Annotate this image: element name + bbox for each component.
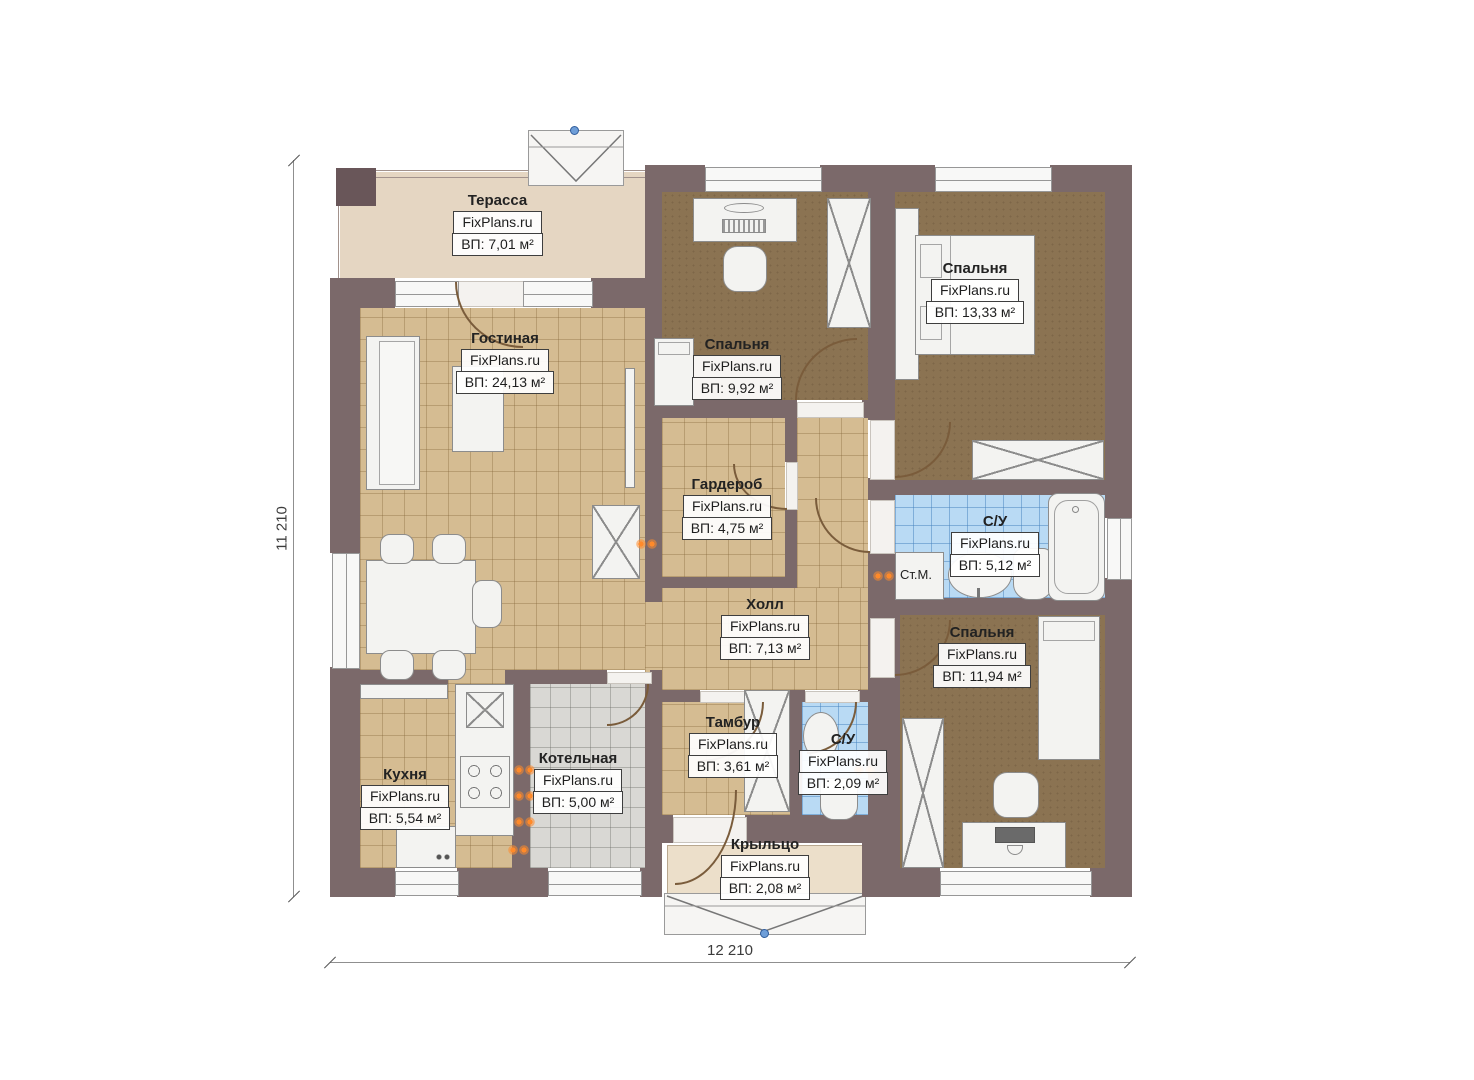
area-box: ВП: 4,75 м² [682, 517, 773, 540]
room-label-bedroom-top: Спальня FixPlans.ru ВП: 9,92 м² [672, 336, 802, 400]
steps-node-dot [760, 929, 769, 938]
area-box: ВП: 13,33 м² [926, 301, 1024, 324]
room-label-terrace: Терасса FixPlans.ru ВП: 7,01 м² [430, 192, 565, 256]
brand-box: FixPlans.ru [689, 733, 777, 756]
window [395, 281, 459, 307]
door-opening [870, 500, 895, 554]
wall-segment [868, 478, 895, 500]
wall-segment [785, 418, 797, 462]
window [705, 167, 822, 192]
brand-box: FixPlans.ru [361, 785, 449, 808]
brand-box: FixPlans.ru [721, 615, 809, 638]
wardrobe-cabinet [972, 440, 1104, 480]
wall-segment [662, 577, 785, 588]
window [1107, 518, 1132, 580]
room-label-bathroom-small: С/У FixPlans.ru ВП: 2,09 м² [778, 731, 908, 795]
door-opening [870, 618, 895, 678]
wall-segment [505, 670, 607, 684]
dimension-line-vertical [293, 160, 294, 897]
sofa [366, 336, 420, 490]
window [523, 281, 593, 307]
room-name: Тамбур [706, 714, 760, 731]
room-label-living: Гостиная FixPlans.ru ВП: 24,13 м² [440, 330, 570, 394]
wall-segment [1050, 165, 1132, 192]
bathtub-inner [1054, 500, 1099, 594]
wall-segment [662, 690, 700, 702]
kitchen-sink [466, 692, 504, 728]
brand-box: FixPlans.ru [693, 355, 781, 378]
kitchen-counter [360, 684, 448, 699]
brand-box: FixPlans.ru [721, 855, 809, 878]
wall-segment [900, 868, 940, 897]
computer-monitor [995, 827, 1035, 843]
room-name: С/У [983, 513, 1007, 530]
keyboard [722, 219, 766, 233]
tv-unit [625, 368, 635, 488]
room-name: Кухня [383, 766, 427, 783]
sofa-seat [379, 341, 415, 485]
room-label-hall: Холл FixPlans.ru ВП: 7,13 м² [700, 596, 830, 660]
stove [460, 756, 510, 808]
room-label-bedroom-bottom: Спальня FixPlans.ru ВП: 11,94 м² [917, 624, 1047, 688]
window [935, 167, 1052, 192]
single-bed [1038, 616, 1100, 760]
area-box: ВП: 11,94 м² [933, 665, 1030, 688]
heater-marker [634, 538, 660, 551]
area-box: ВП: 2,09 м² [798, 772, 889, 795]
door-opening [797, 402, 864, 418]
brand-box: FixPlans.ru [799, 750, 887, 773]
dimension-height: 11 210 [274, 499, 291, 559]
room-name: С/У [831, 731, 855, 748]
desk-lamp [724, 203, 764, 213]
dining-armchair [472, 580, 502, 628]
room-name: Гостиная [471, 330, 539, 347]
floor-plan: Ст.М. Терасса F [0, 0, 1474, 1080]
wall-segment [662, 815, 673, 843]
wall-segment [1105, 578, 1132, 868]
bathtub-drain [1072, 506, 1079, 513]
room-name: Спальня [705, 336, 770, 353]
room-label-bathroom-main: С/У FixPlans.ru ВП: 5,12 м² [930, 513, 1060, 577]
heater-marker [506, 844, 532, 857]
wardrobe-cabinet [827, 198, 871, 328]
sink-tap [977, 588, 980, 598]
steps-marking [529, 131, 623, 185]
door-opening [607, 672, 652, 684]
room-label-kitchen: Кухня FixPlans.ru ВП: 5,54 м² [343, 766, 467, 830]
area-box: ВП: 2,08 м² [720, 877, 811, 900]
room-name: Спальня [950, 624, 1015, 641]
window [332, 553, 360, 669]
brand-box: FixPlans.ru [461, 349, 549, 372]
room-label-boiler: Котельная FixPlans.ru ВП: 5,00 м² [513, 750, 643, 814]
room-name: Гардероб [692, 476, 763, 493]
area-box: ВП: 5,00 м² [533, 791, 624, 814]
heater-marker [512, 816, 538, 829]
area-box: ВП: 7,01 м² [452, 233, 543, 256]
room-name: Терасса [468, 192, 527, 209]
dining-chair [432, 650, 466, 680]
window [395, 871, 459, 896]
wall-segment [360, 278, 395, 308]
desk [962, 822, 1066, 868]
dimension-tick [288, 890, 300, 902]
room-label-porch: Крыльцо FixPlans.ru ВП: 2,08 м² [700, 836, 830, 900]
dimension-line-horizontal [330, 962, 1130, 963]
area-box: ВП: 9,92 м² [692, 377, 783, 400]
wall-segment [1105, 192, 1132, 518]
area-box: ВП: 24,13 м² [456, 371, 554, 394]
dimension-tick [288, 154, 300, 166]
wall-segment [591, 278, 645, 308]
terrace-column [336, 168, 376, 206]
entry-steps-top [528, 130, 624, 186]
wardrobe-cabinet [902, 718, 944, 868]
brand-box: FixPlans.ru [938, 643, 1026, 666]
steps-marking [665, 894, 865, 934]
desk-chair [993, 772, 1039, 818]
dining-chair [380, 534, 414, 564]
wall-segment [330, 868, 395, 897]
room-name: Холл [746, 596, 784, 613]
brand-box: FixPlans.ru [931, 279, 1019, 302]
dining-chair [380, 650, 414, 680]
wall-segment [457, 868, 548, 897]
window [548, 871, 642, 896]
room-label-bedroom-right: Спальня FixPlans.ru ВП: 13,33 м² [910, 260, 1040, 324]
wall-segment [1090, 868, 1132, 897]
room-name: Спальня [943, 260, 1008, 277]
wall-segment [868, 165, 895, 420]
wall-segment [862, 843, 900, 897]
brand-box: FixPlans.ru [534, 769, 622, 792]
heater-marker [871, 570, 897, 583]
door-opening [870, 420, 895, 480]
steps-node-dot [570, 126, 579, 135]
wall-segment [640, 868, 662, 897]
pillow [1043, 621, 1095, 641]
desk [693, 198, 797, 242]
desk-chair [723, 246, 767, 292]
brand-box: FixPlans.ru [453, 211, 541, 234]
fireplace [592, 505, 640, 579]
washing-machine-label: Ст.М. [900, 567, 932, 582]
dining-chair [432, 534, 466, 564]
fridge [396, 826, 456, 868]
brand-box: FixPlans.ru [683, 495, 771, 518]
room-label-wardrobe: Гардероб FixPlans.ru ВП: 4,75 м² [662, 476, 792, 540]
area-box: ВП: 5,12 м² [950, 554, 1041, 577]
brand-box: FixPlans.ru [951, 532, 1039, 555]
dining-table [366, 560, 476, 654]
area-box: ВП: 5,54 м² [360, 807, 451, 830]
monitor-stand [1007, 845, 1023, 855]
wall-segment [645, 684, 662, 868]
room-name: Котельная [539, 750, 618, 767]
area-box: ВП: 7,13 м² [720, 637, 811, 660]
area-box: ВП: 3,61 м² [688, 755, 779, 778]
wall-segment [330, 278, 360, 553]
room-name: Крыльцо [731, 836, 799, 853]
dimension-width: 12 210 [700, 942, 760, 959]
window [940, 871, 1092, 896]
